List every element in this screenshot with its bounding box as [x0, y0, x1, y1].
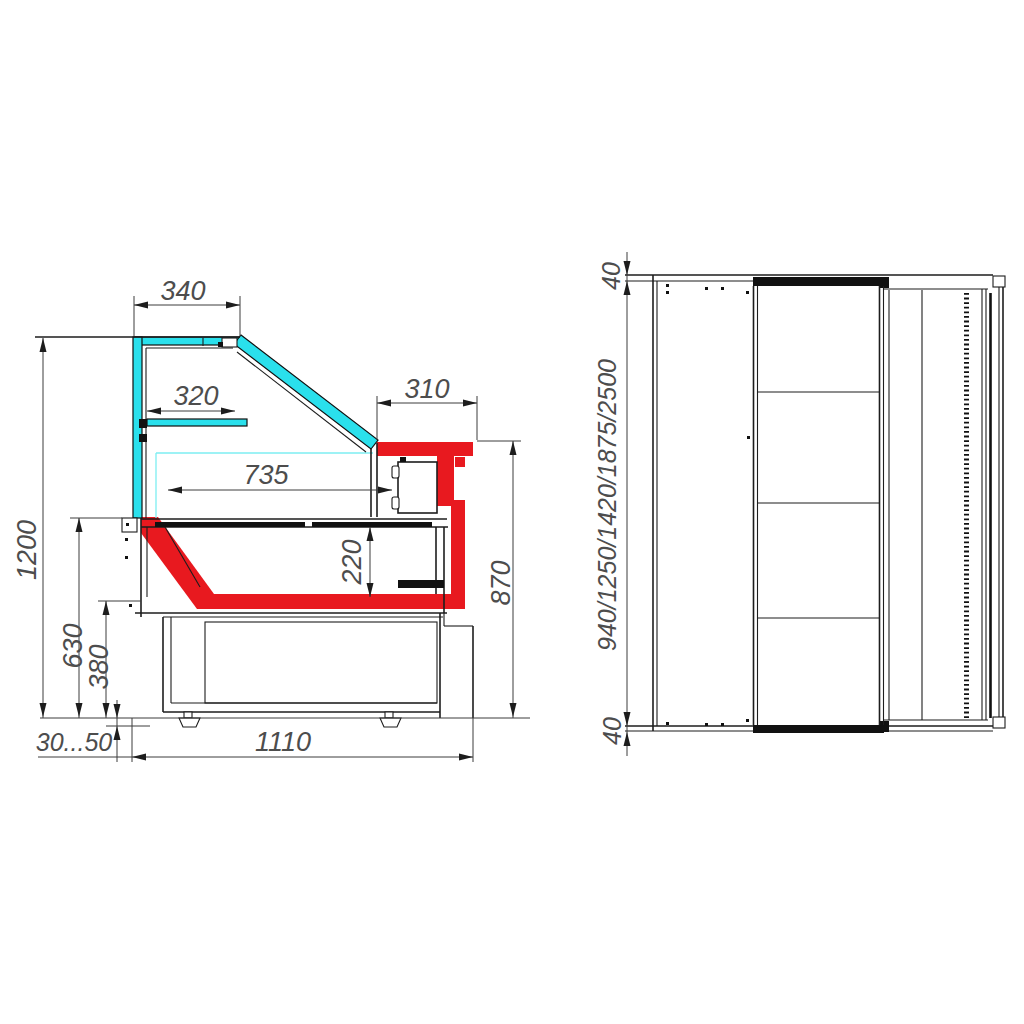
canopy-latch	[222, 338, 237, 347]
dim-870: 870	[486, 560, 516, 605]
end-bracket-top	[993, 276, 1005, 287]
plan-structure	[625, 275, 1005, 733]
dim-220: 220	[337, 539, 367, 585]
technical-drawing-page: 340 320 310 735 1110 30...50 1200 630 38…	[0, 0, 1024, 1024]
refrigerated-display-case-drawing: 340 320 310 735 1110 30...50 1200 630 38…	[0, 0, 1024, 1024]
dim-length-options: 940/1250/1420/1875/2500	[593, 359, 621, 651]
dim-340: 340	[160, 276, 205, 306]
dim-320: 320	[173, 381, 218, 411]
wall-bracket	[122, 518, 137, 532]
dim-310: 310	[404, 374, 449, 404]
dim-1110: 1110	[255, 727, 311, 757]
side-section-view: 340 320 310 735 1110 30...50 1200 630 38…	[12, 276, 530, 762]
dim-1200: 1200	[12, 520, 42, 580]
glass-panels	[133, 335, 378, 518]
plan-view: 40 940/1250/1420/1875/2500 40	[593, 252, 1005, 756]
sloped-glass	[234, 335, 378, 449]
glass-shelf	[147, 419, 247, 426]
dim-380: 380	[84, 644, 114, 689]
adjustable-feet	[179, 712, 401, 727]
dim-40-bottom: 40	[598, 717, 626, 745]
dim-735: 735	[243, 460, 289, 490]
end-bracket-bottom	[993, 717, 1005, 728]
dim-40-top: 40	[597, 262, 625, 290]
plan-view-dimensions: 40 940/1250/1420/1875/2500 40	[593, 252, 631, 756]
service-compartment	[398, 462, 437, 513]
dim-feet-range: 30...50	[36, 728, 113, 756]
